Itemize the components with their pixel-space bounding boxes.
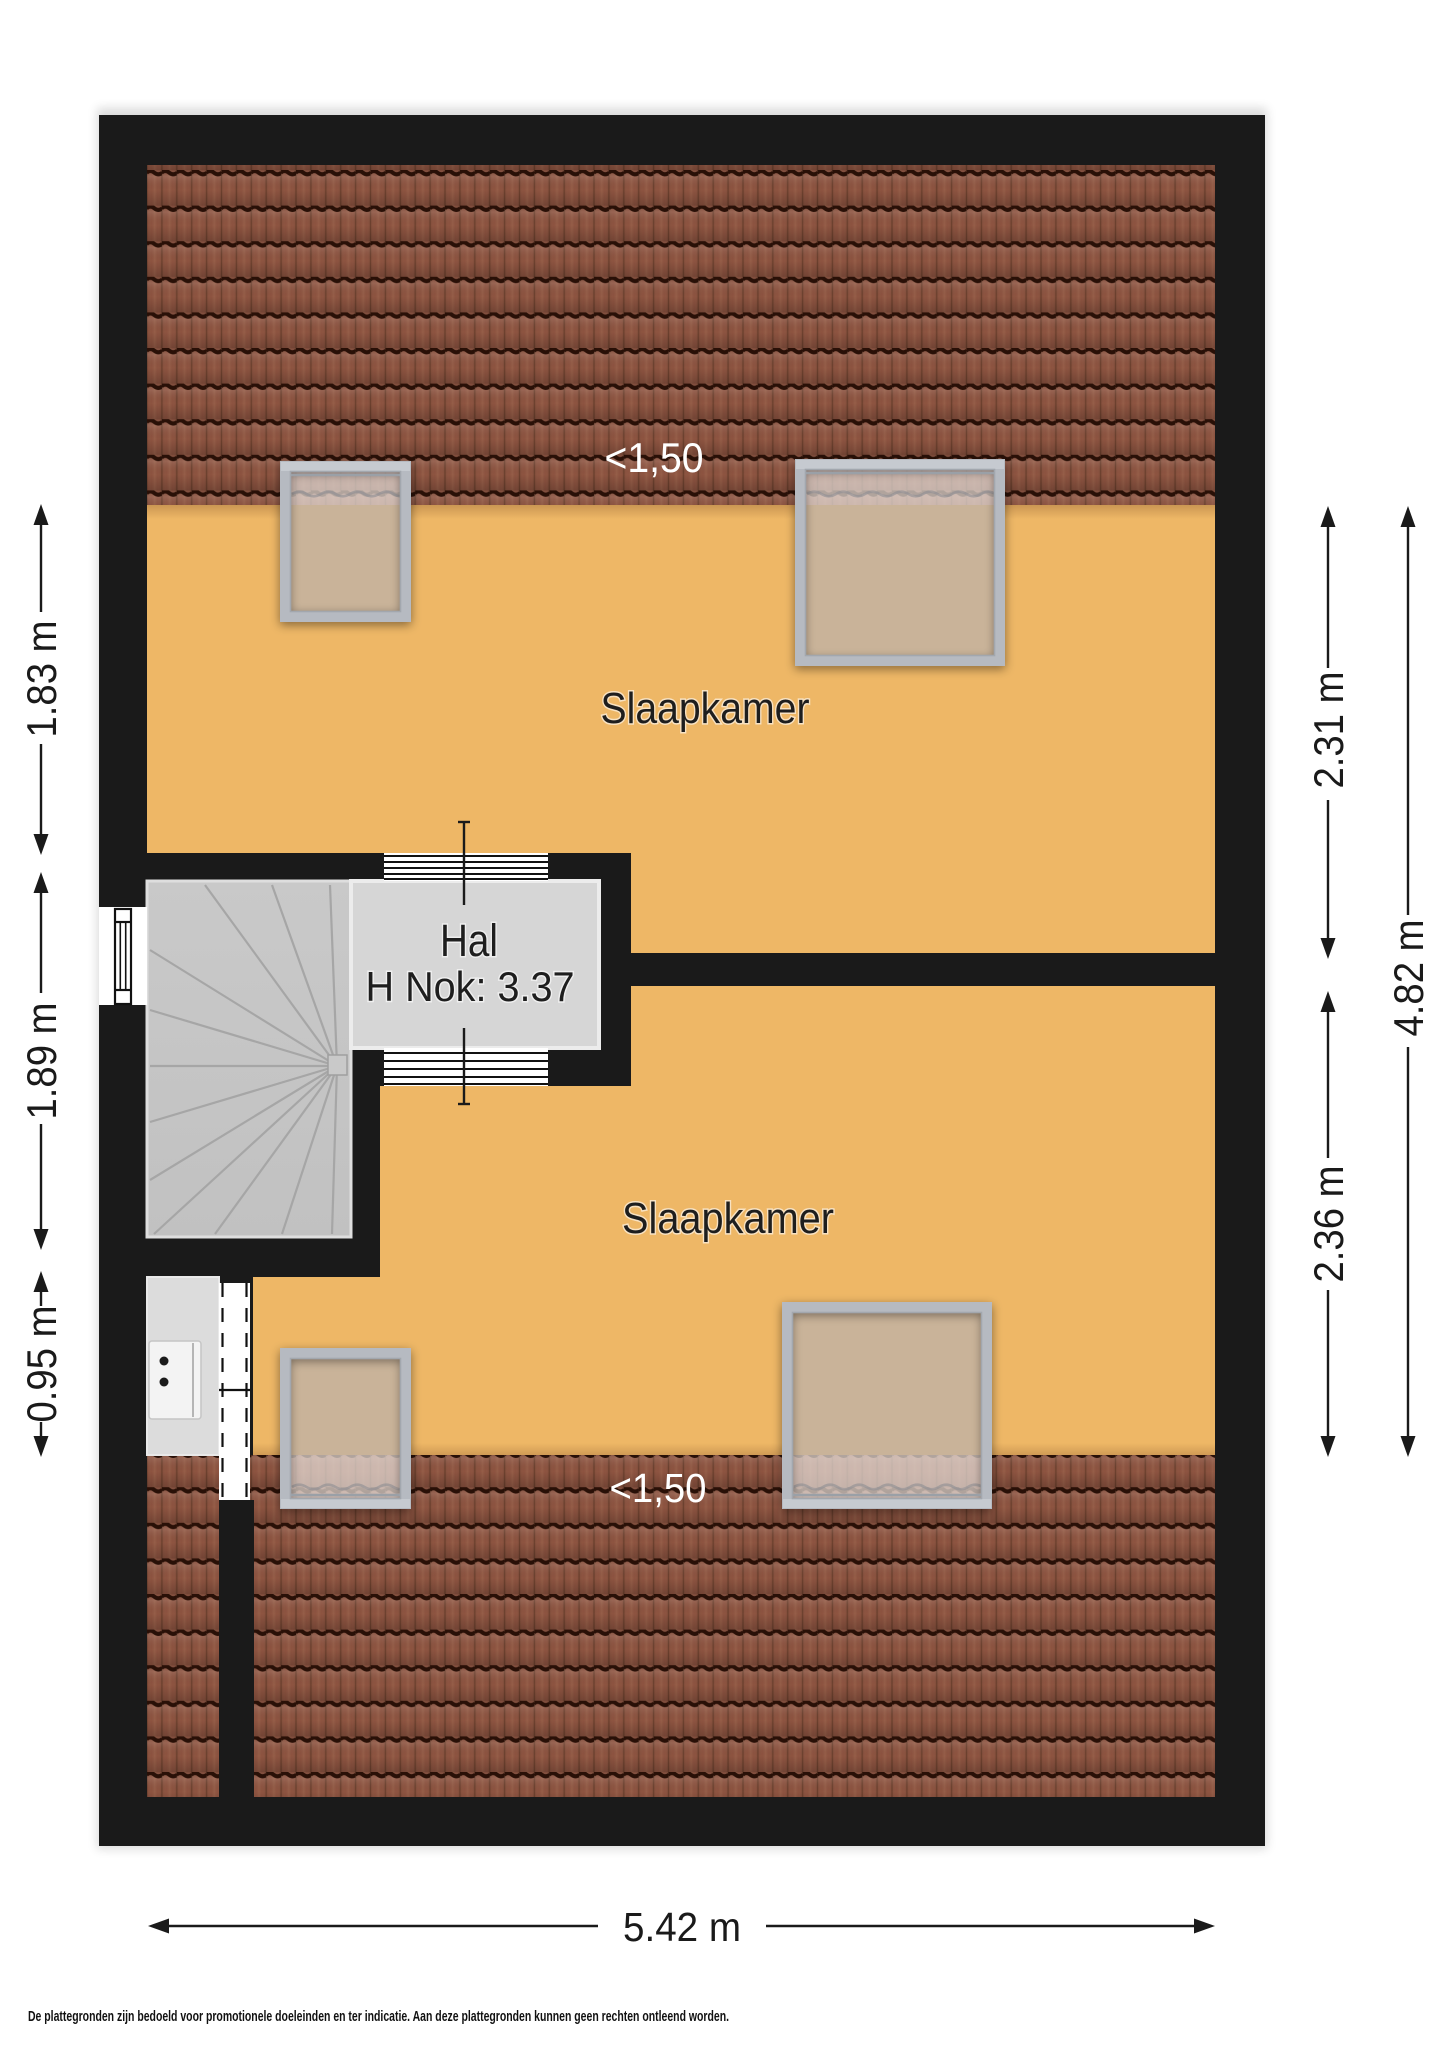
svg-text:H Nok: 3.37: H Nok: 3.37: [366, 963, 575, 1010]
svg-text:Slaapkamer: Slaapkamer: [601, 684, 810, 733]
svg-text:0.95 m: 0.95 m: [18, 1306, 65, 1423]
svg-text:1.89 m: 1.89 m: [18, 1003, 65, 1120]
svg-text:Slaapkamer: Slaapkamer: [622, 1194, 834, 1243]
svg-text:<1,50: <1,50: [605, 434, 704, 481]
svg-text:2.31 m: 2.31 m: [1305, 672, 1352, 789]
svg-text:1.83 m: 1.83 m: [18, 621, 65, 738]
svg-text:4.82 m: 4.82 m: [1385, 920, 1432, 1037]
svg-text:<1,50: <1,50: [610, 1465, 707, 1511]
svg-text:5.42 m: 5.42 m: [623, 1904, 741, 1950]
svg-text:Hal: Hal: [440, 915, 498, 966]
svg-text:De plattegronden zijn bedoeld: De plattegronden zijn bedoeld voor promo…: [28, 2008, 729, 2025]
svg-text:2.36 m: 2.36 m: [1305, 1166, 1352, 1283]
